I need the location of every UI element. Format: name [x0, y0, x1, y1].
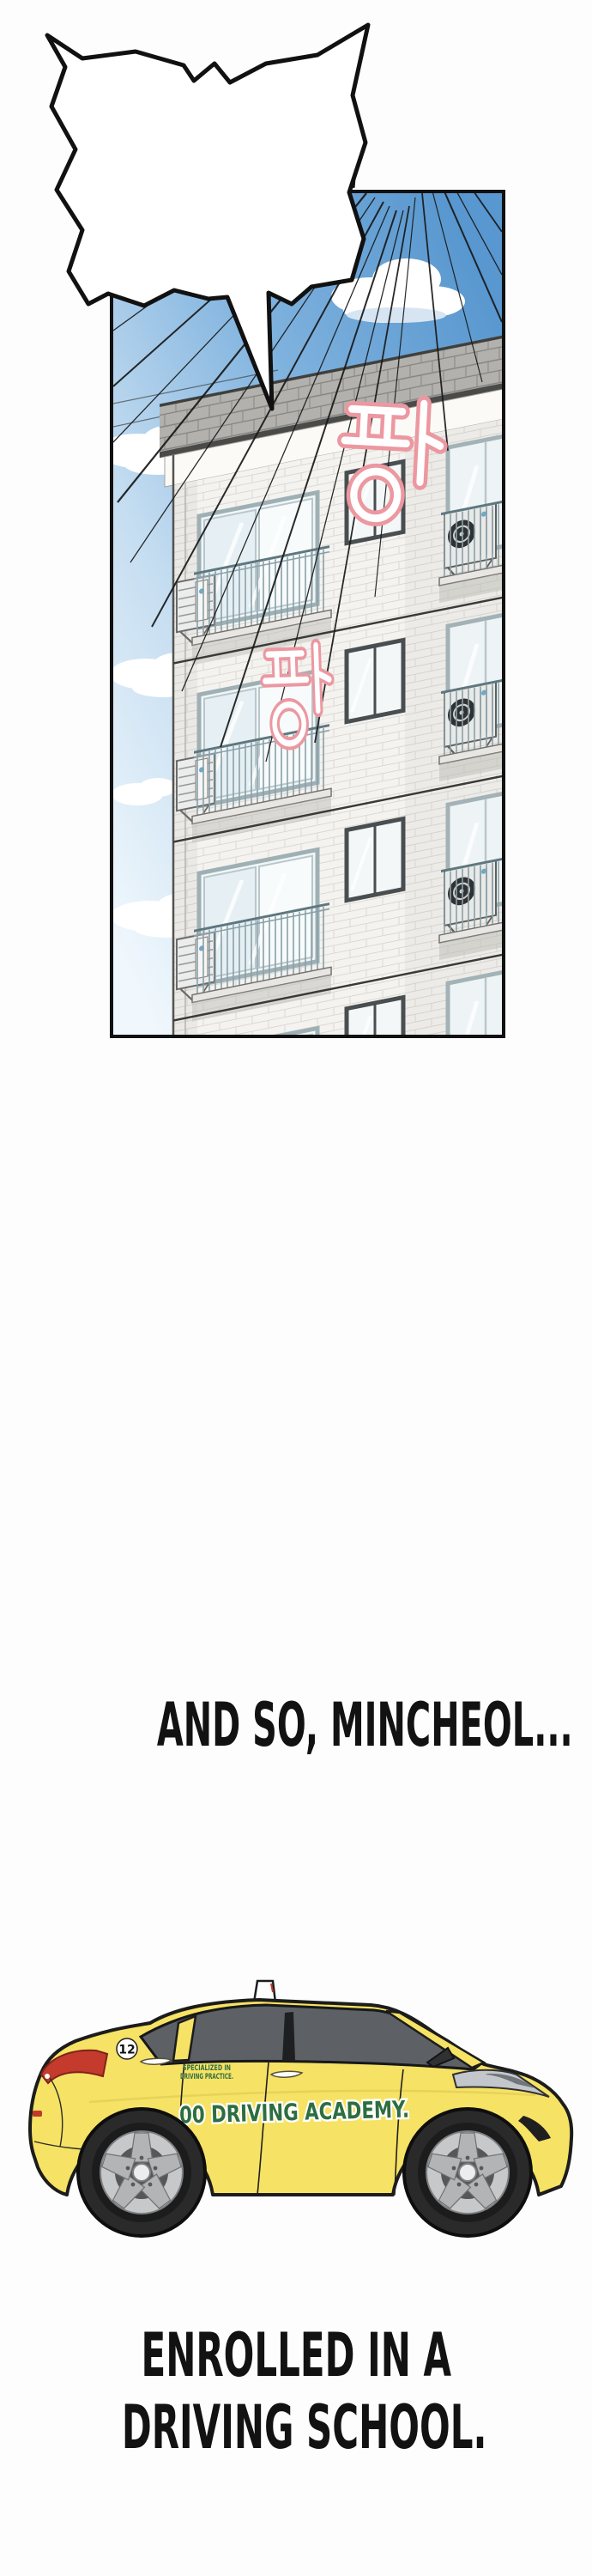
tail-light-glint [45, 2074, 50, 2079]
rear-reflector [33, 2111, 42, 2117]
speech-bubble-outline [47, 25, 368, 409]
badge-number: 12 [118, 2044, 135, 2057]
door-small-text: SPECIALIZED IN DRIVING PRACTICE. [180, 2064, 233, 2081]
car-number-badge: 12 [117, 2038, 137, 2059]
rear-wheel [78, 2109, 205, 2236]
comic-page: AH, COME ON!! AND SO, MINCHEOL... [0, 0, 592, 2576]
narration-bottom-line1: ENROLLED IN A [0, 2325, 592, 2385]
door-small-text-2: DRIVING PRACTICE. [180, 2073, 233, 2081]
front-wheel [404, 2109, 531, 2236]
narration-bottom-line2: DRIVING SCHOOL. [0, 2397, 592, 2458]
speech-bubble [15, 12, 390, 422]
door-small-text-1: SPECIALIZED IN [183, 2064, 231, 2073]
driving-school-car: 12 SPECIALIZED IN DRIVING PRACTICE. 00 D… [10, 1973, 582, 2269]
narration-middle: AND SO, MINCHEOL... [0, 1695, 592, 1755]
